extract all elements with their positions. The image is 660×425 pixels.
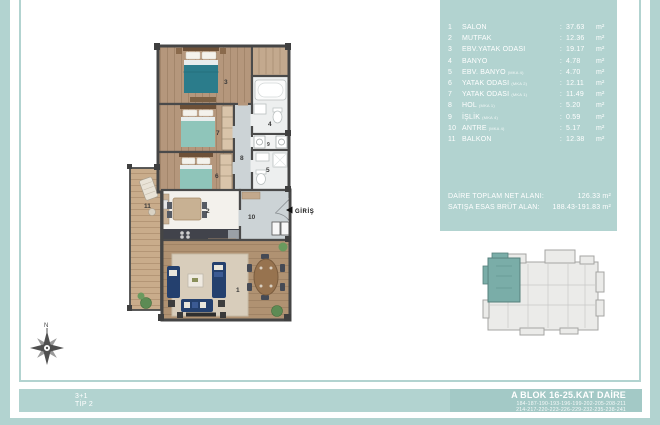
room-row-area: 19.17 bbox=[566, 46, 596, 53]
toilet bbox=[273, 111, 282, 123]
room-row-separator: : bbox=[556, 136, 566, 143]
room-row-separator: : bbox=[556, 125, 566, 132]
room-row-name: BALKON bbox=[462, 136, 492, 143]
dryer bbox=[276, 136, 287, 148]
type-variant: TİP 2 bbox=[75, 401, 93, 409]
room-row-number: 7 bbox=[448, 91, 462, 98]
entry-closet bbox=[281, 222, 289, 235]
room-balkon bbox=[130, 168, 161, 310]
room-row-suffix: (MKA 4) bbox=[489, 126, 505, 131]
room-row-number: 8 bbox=[448, 102, 462, 109]
room-row-separator: : bbox=[556, 102, 566, 109]
room-row-separator: : bbox=[556, 24, 566, 31]
closet-top bbox=[252, 46, 289, 76]
room-row-unit: m² bbox=[596, 46, 611, 53]
room-row-number: 1 bbox=[448, 24, 462, 31]
gross-area-value: 188.43-191.83 m² bbox=[553, 203, 611, 214]
room-row: 5 EBV. BANYO (MKA 4) : 4.70 m² bbox=[448, 69, 611, 80]
apartment-type: 3+1 TİP 2 bbox=[75, 393, 93, 409]
room-salon bbox=[162, 240, 290, 320]
room-row-name: EBV. BANYO bbox=[462, 69, 506, 76]
brochure-page: 3 7 6 8 4 9 5 2 10 1 11 GİRİŞ N bbox=[0, 0, 660, 425]
wardrobe bbox=[220, 154, 232, 190]
plant-icon bbox=[138, 293, 145, 300]
room-row-unit: m² bbox=[596, 102, 611, 109]
frame-line-left bbox=[19, 0, 21, 381]
room-row-name: HOL bbox=[462, 102, 477, 109]
room-row-separator: : bbox=[556, 35, 566, 42]
room-row-number: 2 bbox=[448, 35, 462, 42]
frame-line-right bbox=[639, 0, 641, 381]
room-row: 8 HOL (MKA 1) : 5.20 m² bbox=[448, 102, 611, 113]
plant-icon bbox=[279, 243, 288, 252]
room-row: 4 BANYO : 4.78 m² bbox=[448, 58, 611, 69]
sink bbox=[256, 153, 269, 161]
room-row: 9 İŞLİK (MKA 4) : 0.59 m² bbox=[448, 114, 611, 125]
room-ebv-yatak bbox=[158, 46, 252, 104]
room-row-separator: : bbox=[556, 80, 566, 87]
plant-icon bbox=[272, 306, 283, 317]
dresser bbox=[190, 97, 216, 102]
room-row-unit: m² bbox=[596, 58, 611, 65]
room-row-area: 4.78 bbox=[566, 58, 596, 65]
footer-band: 3+1 TİP 2 A BLOK 16-25.KAT DAİRE 184-187… bbox=[19, 389, 642, 412]
room-row-unit: m² bbox=[596, 69, 611, 76]
room-row: 1 SALON : 37.63 m² bbox=[448, 24, 611, 35]
room-row-suffix: (MKA 1) bbox=[479, 103, 495, 108]
room-row: 7 YATAK ODASI (MKA 1) : 11.49 m² bbox=[448, 91, 611, 102]
room-row-area: 11.49 bbox=[566, 91, 596, 98]
block-title: A BLOK 16-25.KAT DAİRE bbox=[450, 391, 626, 401]
sink bbox=[254, 104, 266, 114]
room-row-separator: : bbox=[556, 69, 566, 76]
type-rooms: 3+1 bbox=[75, 393, 93, 401]
room-row-unit: m² bbox=[596, 35, 611, 42]
room-row: 6 YATAK ODASI (MKA 2) : 12.11 m² bbox=[448, 80, 611, 91]
compass-north-label: N bbox=[44, 323, 48, 329]
room-hol bbox=[233, 103, 253, 191]
room-row-name: SALON bbox=[462, 24, 487, 31]
plan-number-2: 2 bbox=[206, 208, 210, 215]
room-row-separator: : bbox=[556, 58, 566, 65]
plan-number-5: 5 bbox=[266, 167, 270, 174]
room-row-suffix: (MKA 2) bbox=[511, 81, 527, 86]
room-yatak2 bbox=[158, 104, 234, 152]
plan-number-3: 3 bbox=[224, 79, 228, 86]
room-legend-panel: 1 SALON : 37.63 m² 2 MUTFAK : 12.36 m² 3… bbox=[440, 0, 617, 231]
net-area-row: DAİRE TOPLAM NET ALANI: 126.33 m² bbox=[448, 192, 611, 203]
gross-area-row: SATIŞA ESAS BRÜT ALAN: 188.43-191.83 m² bbox=[448, 203, 611, 214]
room-row-number: 10 bbox=[448, 125, 462, 132]
room-row-suffix: (MKA 1) bbox=[511, 92, 527, 97]
shoe-cabinet bbox=[242, 192, 260, 199]
room-list: 1 SALON : 37.63 m² 2 MUTFAK : 12.36 m² 3… bbox=[448, 24, 611, 147]
entry-closet bbox=[272, 222, 280, 235]
room-row-name: MUTFAK bbox=[462, 35, 492, 42]
frame-band-right bbox=[650, 0, 660, 425]
room-row-unit: m² bbox=[596, 91, 611, 98]
room-row-separator: : bbox=[556, 114, 566, 121]
side-table bbox=[168, 300, 175, 307]
net-area-label: DAİRE TOPLAM NET ALANI: bbox=[448, 192, 544, 203]
room-row: 3 EBV.YATAK ODASI : 19.17 m² bbox=[448, 46, 611, 57]
room-row-number: 4 bbox=[448, 58, 462, 65]
frame-band-left bbox=[0, 0, 10, 425]
room-row-area: 12.36 bbox=[566, 35, 596, 42]
toilet bbox=[257, 174, 266, 185]
room-row-unit: m² bbox=[596, 114, 611, 121]
key-plan bbox=[483, 250, 604, 335]
net-area-value: 126.33 m² bbox=[578, 192, 611, 203]
room-row: 11 BALKON : 12.38 m² bbox=[448, 136, 611, 147]
frame-line-bottom bbox=[19, 380, 641, 382]
plan-number-7: 7 bbox=[216, 130, 220, 137]
room-row-unit: m² bbox=[596, 125, 611, 132]
room-row-suffix: (MKA 4) bbox=[508, 70, 524, 75]
room-row-area: 37.63 bbox=[566, 24, 596, 31]
room-row-number: 6 bbox=[448, 80, 462, 87]
room-row-name: İŞLİK bbox=[462, 114, 480, 121]
key-plan-highlighted-unit bbox=[483, 253, 520, 302]
room-row-number: 5 bbox=[448, 69, 462, 76]
plan-number-8: 8 bbox=[240, 155, 244, 162]
side-table bbox=[218, 300, 225, 307]
totals: DAİRE TOPLAM NET ALANI: 126.33 m² SATIŞA… bbox=[448, 192, 611, 213]
room-row-area: 12.11 bbox=[566, 80, 596, 87]
floor-plan: 3 7 6 8 4 9 5 2 10 1 11 GİRİŞ bbox=[127, 43, 314, 321]
room-row-name: EBV.YATAK ODASI bbox=[462, 46, 525, 53]
room-row-area: 5.17 bbox=[566, 125, 596, 132]
gross-area-label: SATIŞA ESAS BRÜT ALAN: bbox=[448, 203, 540, 214]
room-row-number: 9 bbox=[448, 114, 462, 121]
plan-number-6: 6 bbox=[215, 173, 219, 180]
block-info-box: A BLOK 16-25.KAT DAİRE 184-187-190-193-1… bbox=[450, 389, 642, 412]
compass-icon: N bbox=[27, 323, 67, 368]
room-row-name: BANYO bbox=[462, 58, 488, 65]
plan-number-4: 4 bbox=[268, 121, 272, 128]
room-row-area: 0.59 bbox=[566, 114, 596, 121]
kitchen-table bbox=[167, 198, 207, 220]
room-ebv-banyo bbox=[251, 150, 290, 190]
unit-numbers-line2: 214-217-220-223-226-229-232-235-238-241 bbox=[450, 407, 626, 413]
plan-number-11: 11 bbox=[144, 203, 151, 210]
room-row-name: YATAK ODASI bbox=[462, 91, 509, 98]
room-row: 10 ANTRE (MKA 4) : 5.17 m² bbox=[448, 125, 611, 136]
washer bbox=[254, 136, 265, 148]
room-row-unit: m² bbox=[596, 136, 611, 143]
room-row-number: 3 bbox=[448, 46, 462, 53]
entrance-label: GİRİŞ bbox=[295, 208, 314, 215]
room-row-name: ANTRE bbox=[462, 125, 487, 132]
room-antre bbox=[239, 190, 292, 240]
room-row-separator: : bbox=[556, 91, 566, 98]
tv-unit bbox=[186, 313, 216, 317]
plan-number-1: 1 bbox=[236, 287, 240, 294]
room-row-name: YATAK ODASI bbox=[462, 80, 509, 87]
room-row-suffix: (MKA 4) bbox=[482, 115, 498, 120]
room-row-separator: : bbox=[556, 46, 566, 53]
plan-number-9: 9 bbox=[267, 142, 270, 148]
room-row-area: 5.20 bbox=[566, 102, 596, 109]
room-yatak1 bbox=[158, 152, 234, 192]
frame-band-bottom bbox=[0, 418, 660, 425]
room-row-area: 12.38 bbox=[566, 136, 596, 143]
room-row-unit: m² bbox=[596, 80, 611, 87]
plan-number-10: 10 bbox=[248, 214, 256, 221]
room-mutfak bbox=[162, 190, 240, 242]
room-row-unit: m² bbox=[596, 24, 611, 31]
room-row-number: 11 bbox=[448, 136, 462, 143]
room-row-area: 4.70 bbox=[566, 69, 596, 76]
room-row: 2 MUTFAK : 12.36 m² bbox=[448, 35, 611, 46]
